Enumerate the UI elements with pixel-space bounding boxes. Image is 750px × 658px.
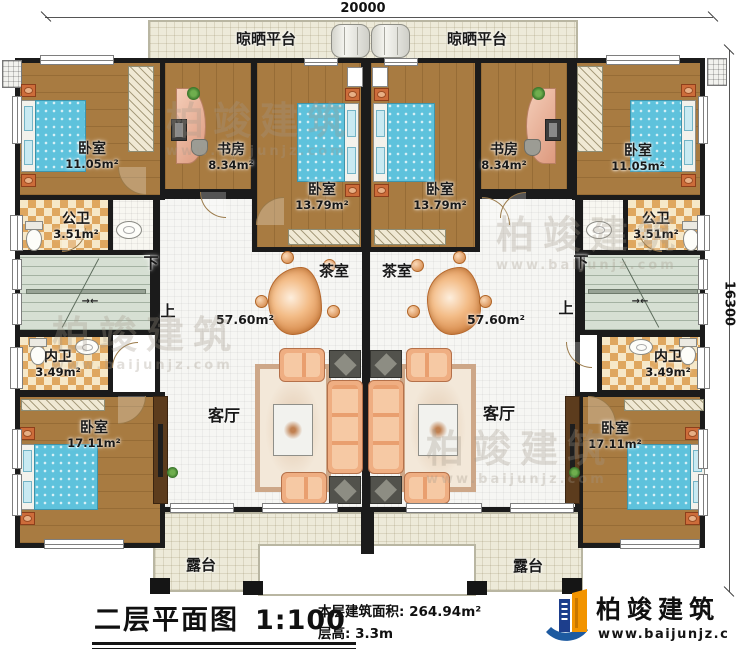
- logo-building-orange-icon: [572, 589, 587, 632]
- room-name: 卧室: [390, 183, 490, 199]
- room-name: 公卫: [606, 212, 706, 228]
- hall-area-right: 57.60m²: [446, 313, 546, 327]
- mattress: [387, 103, 435, 182]
- pillow: [376, 147, 385, 174]
- dimension-value: 16300: [722, 281, 737, 326]
- nightstand: [681, 84, 696, 97]
- room-name: 卧室: [42, 142, 142, 158]
- mattress: [627, 444, 691, 510]
- terrace-post: [467, 581, 487, 595]
- pillow: [23, 481, 32, 503]
- stool: [407, 305, 420, 318]
- room-area: 17.11m²: [44, 437, 144, 450]
- mattress: [34, 444, 98, 510]
- closet: [21, 399, 105, 411]
- sofa-set-left: [253, 348, 365, 506]
- plan-info: 本层建筑面积: 264.94m² 层高: 3.3m: [318, 601, 481, 646]
- room-label-drying-platform-left: 晾晒平台: [206, 31, 326, 48]
- stair-up-label-left: 上: [153, 303, 183, 320]
- pillow: [24, 106, 33, 130]
- side-table: [370, 476, 402, 504]
- sofa: [327, 380, 363, 474]
- window: [698, 429, 708, 469]
- floor-plan: →← →←: [0, 0, 750, 658]
- window: [12, 429, 22, 469]
- room-name: 书房: [454, 143, 554, 159]
- room-label-drying-platform-right: 晾晒平台: [417, 31, 537, 48]
- room-area: 3.49m²: [618, 366, 718, 379]
- stair-rail: [26, 289, 146, 294]
- room-label-bedroom-top-left: 卧室11.05m²: [42, 142, 142, 171]
- window: [10, 215, 23, 251]
- stool: [479, 295, 492, 308]
- room-area: 17.11m²: [565, 438, 665, 451]
- window: [12, 96, 22, 144]
- pillow: [376, 110, 385, 137]
- pillow: [23, 450, 32, 472]
- room-area: 3.51m²: [26, 228, 126, 241]
- coffee-table: [273, 404, 313, 456]
- logo-graphic-icon: 柏竣建筑 www.baijunjz.com: [538, 586, 728, 648]
- room-name: 书房: [181, 143, 281, 159]
- sofa: [368, 380, 404, 474]
- terrace-post: [150, 578, 170, 594]
- window: [12, 293, 22, 325]
- room-label-bedroom-mid-left: 卧室13.79m²: [272, 183, 372, 212]
- window: [40, 55, 114, 65]
- room-area: 57.60m²: [216, 312, 274, 327]
- room-area: 13.79m²: [390, 199, 490, 212]
- party-wall: [361, 512, 374, 554]
- window: [12, 259, 22, 290]
- closet: [288, 229, 360, 245]
- ac-unit: [707, 58, 727, 86]
- window: [606, 55, 680, 65]
- room-label-public-bath-left: 公卫3.51m²: [26, 212, 126, 241]
- room-name: 内卫: [8, 350, 108, 366]
- armchair: [406, 348, 452, 382]
- room-name: 晾晒平台: [236, 30, 296, 48]
- brand-website: www.baijunjz.com: [598, 627, 728, 642]
- window: [304, 58, 338, 66]
- room-label-terrace-right: 露台: [478, 558, 578, 575]
- room-label-study-right: 书房8.34m²: [454, 143, 554, 172]
- water-tank: [331, 24, 370, 58]
- nightstand: [681, 174, 696, 187]
- computer-monitor: [171, 119, 187, 141]
- pillow: [347, 147, 356, 174]
- building-area: 本层建筑面积: 264.94m²: [318, 601, 481, 623]
- room-area: 11.05m²: [42, 158, 142, 171]
- stair-direction: 上: [558, 299, 573, 317]
- room-name: 客厅: [483, 404, 515, 423]
- room-label-bedroom-bottom-left: 卧室17.11m²: [44, 421, 144, 450]
- dimension-value: 20000: [340, 1, 385, 16]
- room-name: 客厅: [208, 406, 240, 425]
- stair-rail: [588, 289, 698, 294]
- niche: [347, 67, 363, 87]
- nightstand: [21, 84, 36, 97]
- room-name: 茶室: [319, 262, 349, 280]
- window: [698, 96, 708, 144]
- plan-name: 二层平面图: [94, 605, 239, 636]
- wardrobe: [128, 66, 154, 152]
- room-area: 13.79m²: [272, 199, 372, 212]
- room-label-living-right: 客厅: [449, 405, 549, 423]
- mattress: [297, 103, 345, 182]
- plan-title: 二层平面图1:100: [92, 598, 356, 645]
- room-label-tea-room-right: 茶室: [357, 263, 437, 280]
- terrace-post: [243, 581, 263, 595]
- door: [112, 342, 138, 368]
- terrace-door: [170, 503, 234, 513]
- room-area: 8.34m²: [454, 159, 554, 172]
- pillow: [684, 106, 693, 130]
- room-label-bedroom-mid-right: 卧室13.79m²: [390, 183, 490, 212]
- stool: [255, 295, 268, 308]
- stair-direction: 下: [573, 253, 588, 271]
- ac-unit: [2, 60, 22, 88]
- room-name: 露台: [513, 557, 543, 575]
- window: [384, 58, 418, 66]
- stair-arrow: →←: [620, 296, 660, 307]
- niche: [372, 67, 388, 87]
- plant: [569, 467, 580, 478]
- stair-arrow: →←: [70, 296, 110, 307]
- plant: [532, 87, 545, 100]
- room-label-bedroom-top-right: 卧室11.05m²: [588, 144, 688, 173]
- terrace-door: [406, 503, 482, 513]
- dimension-line-top: [45, 17, 713, 18]
- room-label-inner-bath-right: 内卫3.49m²: [618, 350, 718, 379]
- closet: [374, 229, 446, 245]
- window: [620, 539, 700, 549]
- tv-cabinet: [153, 396, 168, 504]
- dimension-height: 16300: [722, 279, 737, 329]
- nightstand: [345, 88, 360, 101]
- room-name: 卧室: [272, 183, 372, 199]
- floor-height: 层高: 3.3m: [318, 623, 481, 645]
- armchair: [281, 472, 327, 504]
- room-name: 卧室: [44, 421, 144, 437]
- stair-down-label-left: 下: [136, 255, 166, 272]
- nightstand: [20, 512, 35, 525]
- wardrobe: [577, 66, 603, 152]
- window: [698, 293, 708, 325]
- bed: [373, 103, 435, 182]
- terrace-door: [510, 503, 574, 513]
- room-area: 11.05m²: [588, 160, 688, 173]
- window: [44, 539, 124, 549]
- window: [12, 474, 22, 516]
- nightstand: [374, 88, 389, 101]
- stool: [327, 305, 340, 318]
- room-name: 露台: [186, 556, 216, 574]
- room-name: 公卫: [26, 212, 126, 228]
- room-name: 卧室: [588, 144, 688, 160]
- window: [698, 259, 708, 290]
- armchair: [404, 472, 450, 504]
- stair-direction: 上: [160, 302, 175, 320]
- pillow: [347, 110, 356, 137]
- room-label-terrace-left: 露台: [151, 557, 251, 574]
- nightstand: [374, 184, 389, 197]
- room-area: 3.51m²: [606, 228, 706, 241]
- room-area: 57.60m²: [467, 312, 525, 327]
- stair-direction: 下: [143, 254, 158, 272]
- sofa-set-right: [366, 348, 478, 506]
- room-name: 卧室: [565, 422, 665, 438]
- plant: [167, 467, 178, 478]
- stair-up-label-right: 上: [551, 300, 581, 317]
- window: [698, 474, 708, 516]
- side-table: [329, 350, 361, 378]
- bed: [20, 444, 98, 510]
- pillow: [24, 140, 33, 164]
- room-label-public-bath-right: 公卫3.51m²: [606, 212, 706, 241]
- terrace-door: [262, 503, 338, 513]
- closet: [624, 399, 704, 411]
- nightstand: [20, 427, 35, 440]
- water-tank: [371, 24, 410, 58]
- bed: [297, 103, 359, 182]
- room-name: 晾晒平台: [447, 30, 507, 48]
- room-area: 8.34m²: [181, 159, 281, 172]
- room-name: 茶室: [382, 262, 412, 280]
- hall-area-left: 57.60m²: [195, 313, 295, 327]
- room-label-study-left: 书房8.34m²: [181, 143, 281, 172]
- room-label-inner-bath-left: 内卫3.49m²: [8, 350, 108, 379]
- side-table: [370, 350, 402, 378]
- side-table: [329, 476, 361, 504]
- room-label-living-left: 客厅: [174, 407, 274, 425]
- stool: [281, 251, 294, 264]
- brand-logo: 柏竣建筑 www.baijunjz.com: [538, 586, 728, 652]
- dimension-width: 20000: [328, 1, 398, 16]
- armchair: [279, 348, 325, 382]
- nightstand: [21, 174, 36, 187]
- computer-monitor: [545, 119, 561, 141]
- bed: [627, 444, 705, 510]
- stair-down-label-right: 下: [566, 254, 596, 271]
- room-label-bedroom-bottom-right: 卧室17.11m²: [565, 422, 665, 451]
- stool: [453, 251, 466, 264]
- room-name: 内卫: [618, 350, 718, 366]
- plant: [187, 87, 200, 100]
- room-area: 3.49m²: [8, 366, 108, 379]
- brand-name: 柏竣建筑: [596, 595, 720, 624]
